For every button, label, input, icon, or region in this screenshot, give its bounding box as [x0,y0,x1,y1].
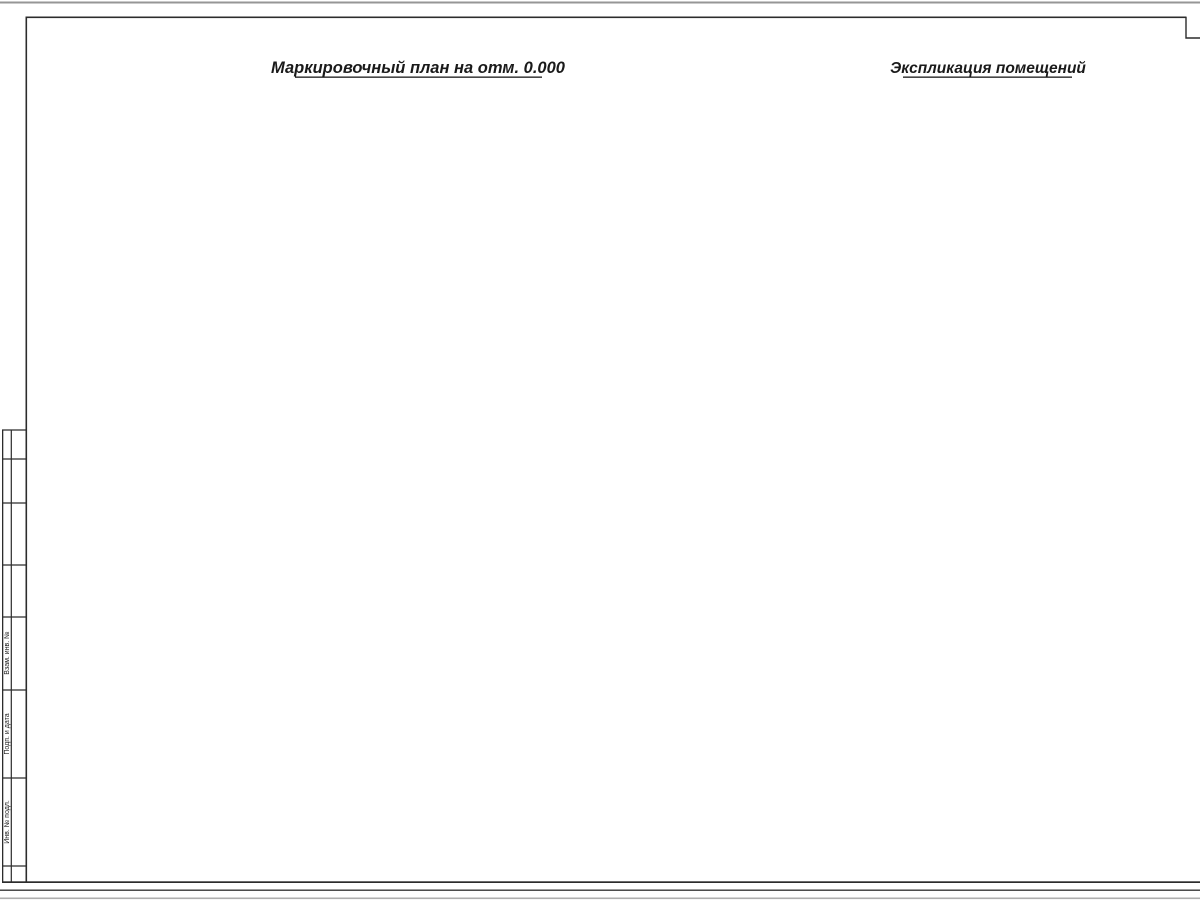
svg-text:Маркировочный план на отм. 0.0: Маркировочный план на отм. 0.000 [271,59,566,77]
svg-text:Взам. инв. №: Взам. инв. № [4,631,11,674]
svg-text:Экспликация помещений: Экспликация помещений [890,60,1086,77]
svg-text:Подп. и дата: Подп. и дата [4,713,11,754]
svg-text:Инв. № подл.: Инв. № подл. [4,800,11,844]
